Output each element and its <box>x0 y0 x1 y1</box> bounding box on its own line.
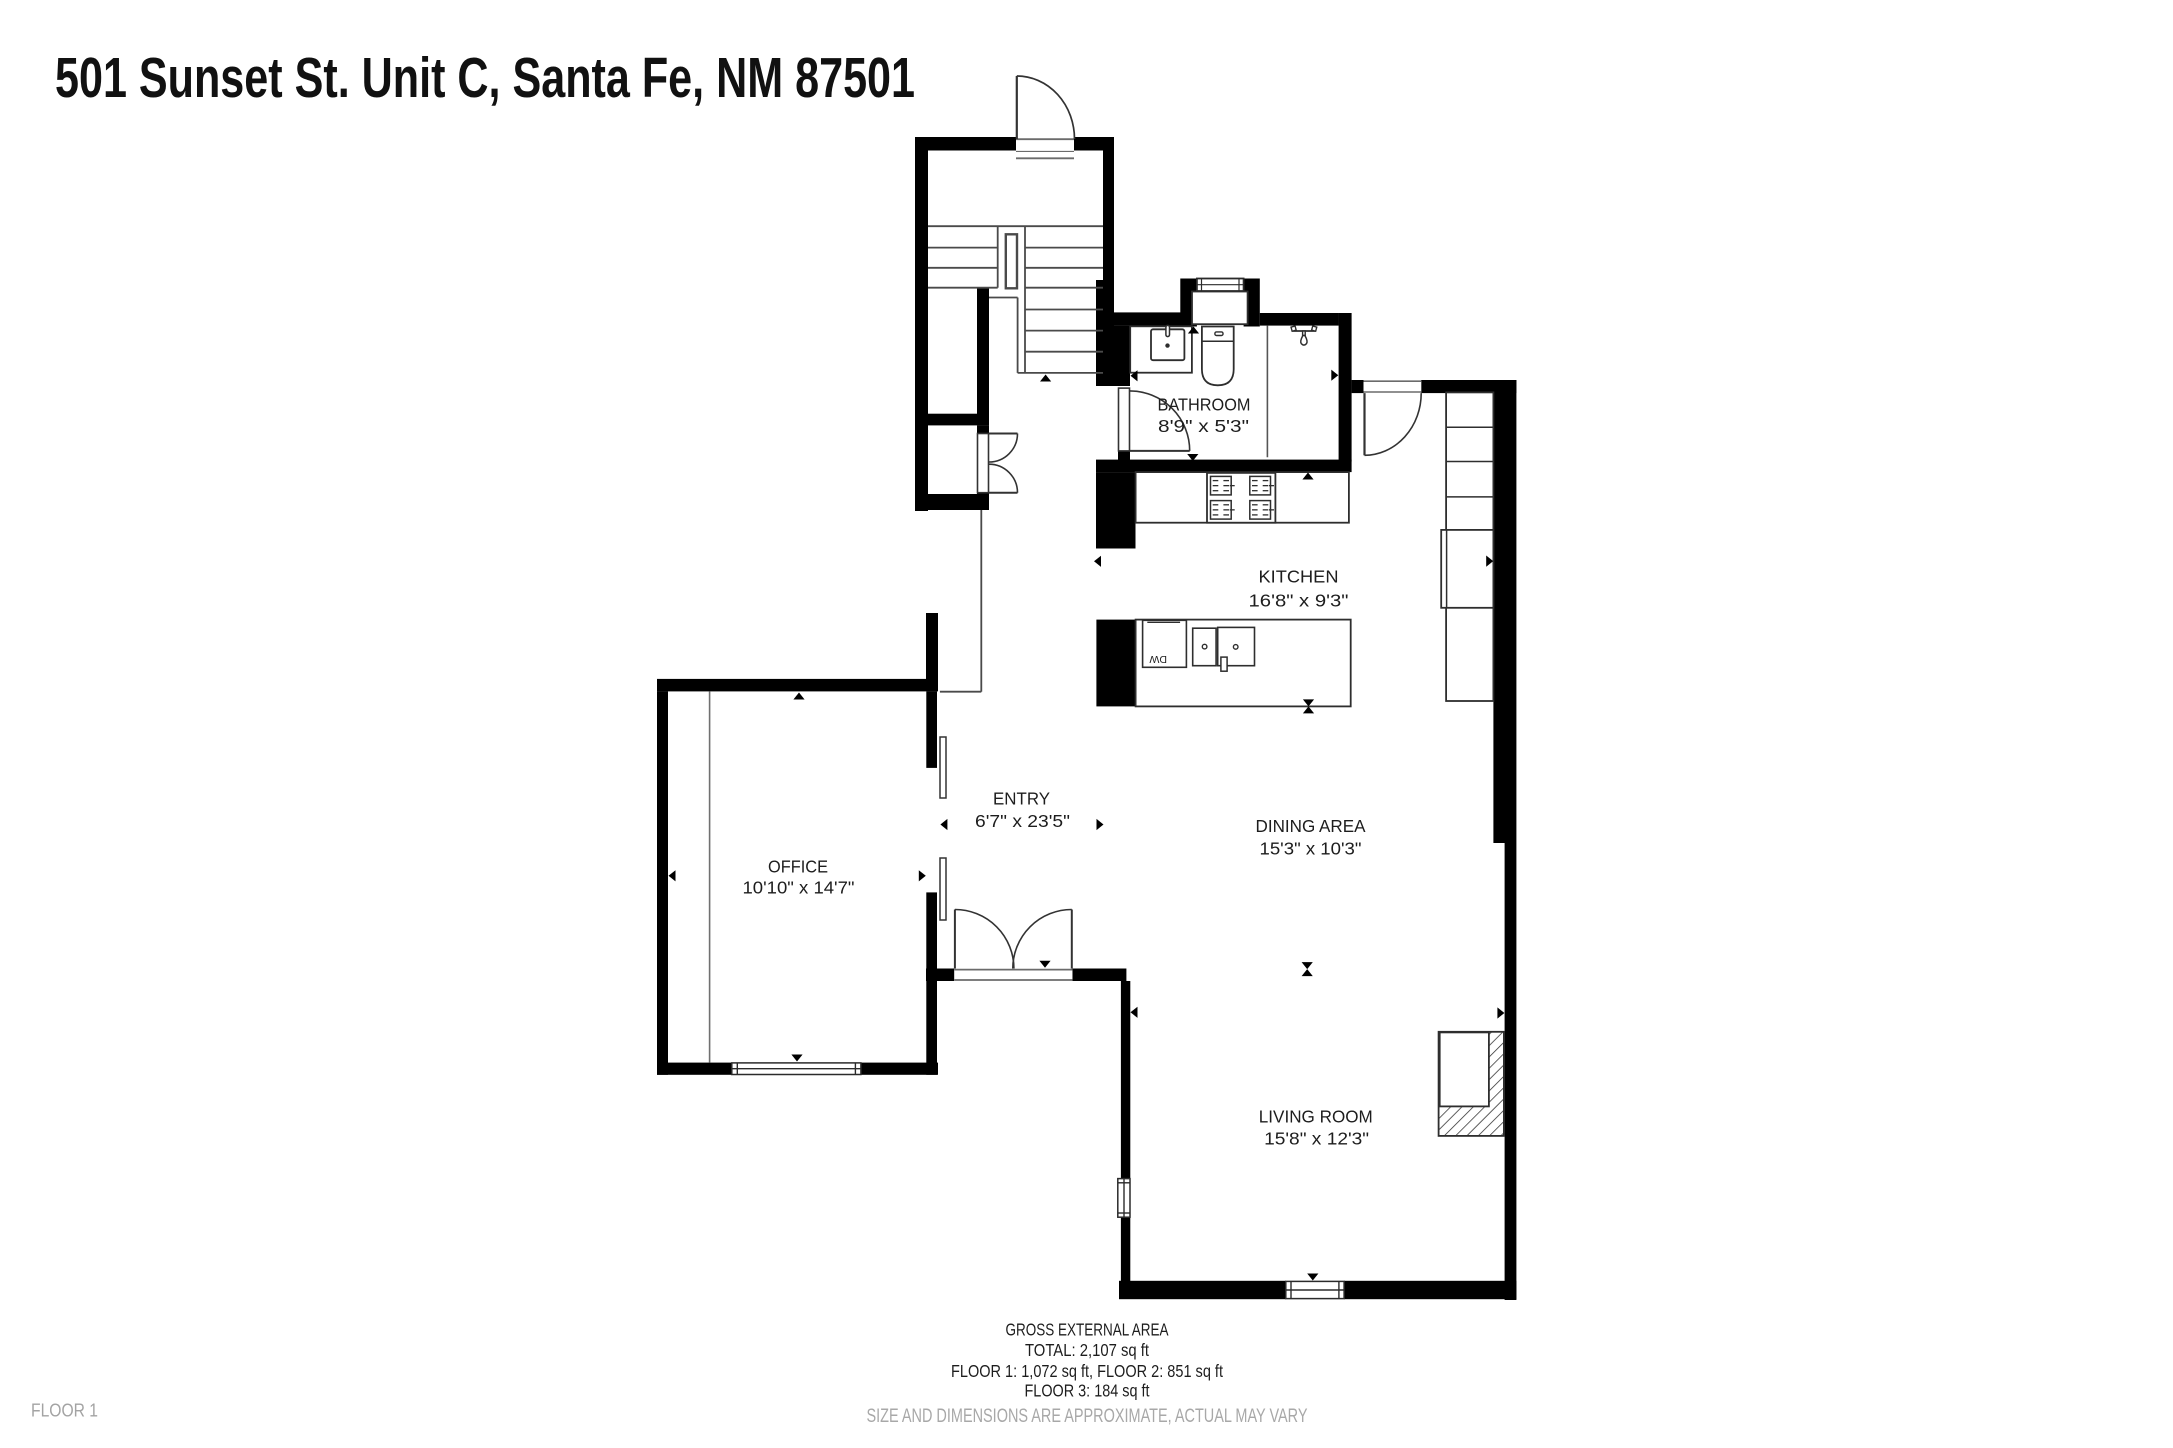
svg-text:6'7" x 23'5": 6'7" x 23'5" <box>975 811 1070 831</box>
svg-text:LIVING ROOM: LIVING ROOM <box>1259 1107 1373 1127</box>
svg-text:GROSS EXTERNAL AREA: GROSS EXTERNAL AREA <box>1006 1319 1169 1339</box>
svg-text:OFFICE: OFFICE <box>768 857 828 877</box>
svg-text:SIZE AND DIMENSIONS ARE APPROX: SIZE AND DIMENSIONS ARE APPROXIMATE, ACT… <box>867 1405 1308 1427</box>
svg-text:TOTAL: 2,107 sq ft: TOTAL: 2,107 sq ft <box>1025 1340 1149 1360</box>
svg-text:15'8" x 12'3": 15'8" x 12'3" <box>1264 1129 1369 1149</box>
svg-text:16'8" x 9'3": 16'8" x 9'3" <box>1249 591 1349 611</box>
svg-text:DW: DW <box>1149 653 1167 665</box>
svg-text:8'9" x 5'3": 8'9" x 5'3" <box>1158 416 1249 436</box>
svg-text:ENTRY: ENTRY <box>993 789 1050 809</box>
svg-text:DINING AREA: DINING AREA <box>1256 816 1366 836</box>
svg-text:FLOOR 1: 1,072 sq ft, FLOOR 2:: FLOOR 1: 1,072 sq ft, FLOOR 2: 851 sq ft <box>951 1361 1223 1381</box>
svg-text:15'3" x 10'3": 15'3" x 10'3" <box>1260 839 1362 859</box>
svg-text:BATHROOM: BATHROOM <box>1158 395 1251 415</box>
svg-text:KITCHEN: KITCHEN <box>1259 567 1339 587</box>
svg-text:10'10" x 14'7": 10'10" x 14'7" <box>743 878 855 898</box>
svg-text:501 Sunset St. Unit C, Santa F: 501 Sunset St. Unit C, Santa Fe, NM 8750… <box>55 46 915 110</box>
svg-text:FLOOR 1: FLOOR 1 <box>31 1400 98 1421</box>
svg-text:FLOOR 3: 184 sq ft: FLOOR 3: 184 sq ft <box>1025 1381 1150 1401</box>
